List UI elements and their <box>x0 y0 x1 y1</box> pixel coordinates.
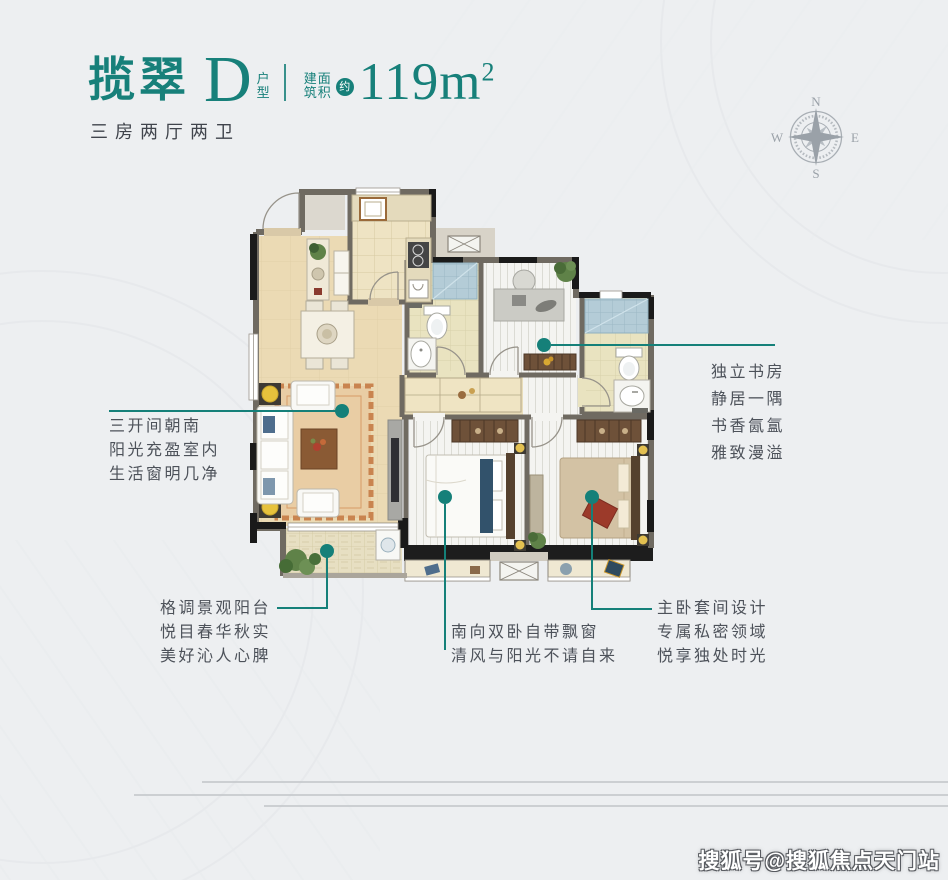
sink-master <box>620 386 644 406</box>
approx-badge: 约 <box>336 78 354 96</box>
entry-cabinet <box>307 239 329 300</box>
annotation-master: 主卧套间设计 专属私密领域 悦享独处时光 <box>657 597 768 669</box>
area-exponent: 2 <box>481 58 495 87</box>
annotation-line: 清风与阳光不请自来 <box>451 645 618 669</box>
dresser-master <box>530 475 543 533</box>
annotation-line: 专属私密领域 <box>657 621 768 645</box>
unit-type-letter: D <box>204 56 252 104</box>
kitchen-sink <box>360 198 386 220</box>
tv <box>391 438 399 502</box>
wardrobe-bedroom2 <box>452 420 518 442</box>
annotation-line: 书香氤氲 <box>711 413 785 440</box>
annotation-line: 阳光充盈室内 <box>109 439 220 463</box>
unit-label-top: 户 <box>257 72 271 86</box>
annotation-line: 静居一隅 <box>711 386 785 413</box>
compass-n-label: N <box>811 94 821 109</box>
watermark: 搜狐号@搜狐焦点天门站 <box>699 845 940 875</box>
annotation-line: 美好沁人心脾 <box>160 645 271 669</box>
divider-line-2 <box>134 794 948 796</box>
divider-line-3 <box>264 805 948 807</box>
annotation-living: 三开间朝南 阳光充盈室内 生活窗明几净 <box>109 415 220 487</box>
hallway-cabinet <box>405 378 521 412</box>
unit-label-bottom: 型 <box>257 86 271 100</box>
unit-type-label: 户 型 <box>257 72 271 104</box>
bay-window-glass-1 <box>405 577 490 581</box>
divider-line-1 <box>202 781 948 783</box>
entry-porch <box>304 194 345 230</box>
corridor-floor <box>523 375 579 417</box>
area-value: 119m2 <box>359 62 496 103</box>
annotation-south-bedrooms: 南向双卧自带飘窗 清风与阳光不请自来 <box>451 621 618 669</box>
bg-stripes-left <box>0 540 380 880</box>
annotation-line: 格调景观阳台 <box>160 597 271 621</box>
annotation-line: 三开间朝南 <box>109 415 220 439</box>
bed-throw <box>480 459 493 533</box>
area-label-bottom: 筑积 <box>304 86 332 100</box>
annotation-line: 悦目春华秋实 <box>160 621 271 645</box>
area-label-top: 建面 <box>304 72 332 86</box>
area-number: 119m <box>359 53 482 111</box>
compass-w-label: W <box>771 130 784 145</box>
annotation-line: 悦享独处时光 <box>657 645 768 669</box>
kitchen-basin <box>409 280 428 298</box>
compass-rose: N S W E <box>760 84 872 192</box>
floor-plan <box>246 180 662 586</box>
project-name: 揽翠 <box>88 60 190 103</box>
annotation-line: 独立书房 <box>711 359 785 386</box>
ac-recess-south <box>490 552 548 561</box>
balcony-railing <box>283 573 407 578</box>
annotation-line: 雅致漫溢 <box>711 440 785 467</box>
area-label: 建面 筑积 <box>304 72 332 104</box>
poster: 揽翠 D 户 型 建面 筑积 约 119m2 三房两厅两卫 N S W E <box>0 0 948 880</box>
compass-star-main <box>788 108 844 166</box>
title-divider <box>284 64 286 101</box>
annotation-study: 独立书房 静居一隅 书香氤氲 雅致漫溢 <box>711 359 785 467</box>
annotation-balcony: 格调景观阳台 悦目春华秋实 美好沁人心脾 <box>160 597 271 669</box>
annotation-line: 主卧套间设计 <box>657 597 768 621</box>
room-summary: 三房两厅两卫 <box>90 118 240 144</box>
title-block: 揽翠 D 户 型 建面 筑积 约 119m2 <box>88 56 495 104</box>
bay-window-glass-2 <box>548 577 630 581</box>
compass-e-label: E <box>851 130 859 145</box>
annotation-line: 南向双卧自带飘窗 <box>451 621 618 645</box>
compass-s-label: S <box>812 166 819 181</box>
sink-public <box>411 341 431 367</box>
annotation-line: 生活窗明几净 <box>109 463 220 487</box>
